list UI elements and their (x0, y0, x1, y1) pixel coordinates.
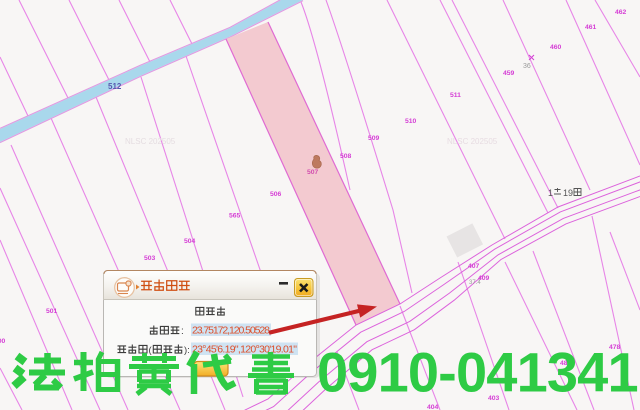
svg-text:1: 1 (548, 188, 553, 198)
svg-text:510: 510 (405, 118, 417, 125)
svg-text:504: 504 (184, 238, 196, 245)
svg-text:507: 507 (307, 169, 319, 176)
svg-text:506: 506 (270, 191, 282, 198)
svg-text:508: 508 (340, 153, 352, 160)
svg-text:23.75172,120.50528: 23.75172,120.50528 (192, 325, 270, 337)
svg-text:):: ): (184, 345, 190, 356)
svg-text:23°45'6.19",120°30'19.01": 23°45'6.19",120°30'19.01" (192, 344, 297, 356)
svg-text:501: 501 (46, 308, 58, 315)
svg-text:404: 404 (427, 404, 439, 410)
svg-text:19: 19 (563, 188, 573, 198)
svg-text:565: 565 (229, 213, 241, 220)
svg-text::: : (181, 326, 184, 337)
svg-text:459: 459 (503, 70, 515, 77)
svg-text:503: 503 (144, 255, 156, 262)
svg-text:37.4: 37.4 (469, 280, 481, 286)
svg-text:460: 460 (550, 44, 562, 51)
svg-text:462: 462 (615, 9, 627, 16)
svg-text:407: 407 (468, 263, 480, 270)
svg-text:NLSC 202505: NLSC 202505 (447, 137, 498, 146)
svg-text:511: 511 (450, 92, 461, 99)
svg-text:500: 500 (0, 338, 6, 345)
svg-text:36: 36 (523, 63, 531, 70)
svg-text:NLSC 202505: NLSC 202505 (125, 137, 176, 146)
svg-text:509: 509 (368, 135, 380, 142)
svg-text:512: 512 (108, 82, 122, 91)
svg-text:0910-041341: 0910-041341 (317, 341, 638, 404)
svg-text:461: 461 (585, 24, 597, 31)
